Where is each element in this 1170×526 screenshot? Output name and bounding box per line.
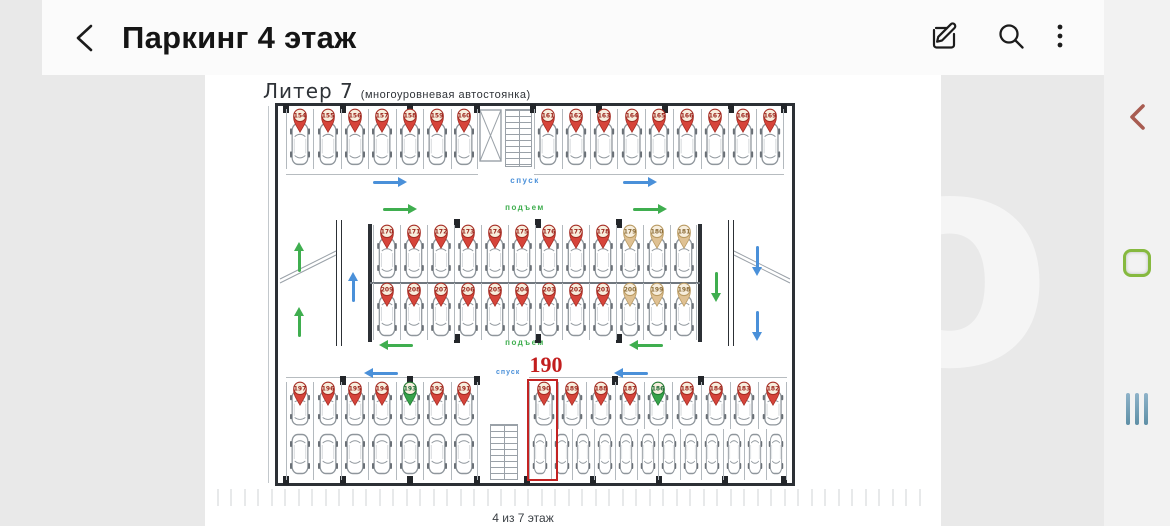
lane-arrow bbox=[373, 181, 403, 184]
parking-spot-183[interactable]: 183 bbox=[730, 382, 759, 429]
spot-pin-icon: 174 bbox=[486, 223, 505, 249]
spot-pin-icon: 180 bbox=[648, 223, 667, 249]
elevator-shaft bbox=[479, 109, 502, 162]
parking-spot-195[interactable]: 195 bbox=[341, 382, 368, 429]
spot-pin-icon: 202 bbox=[567, 281, 586, 307]
svg-text:164: 164 bbox=[625, 113, 638, 120]
svg-text:186: 186 bbox=[652, 386, 665, 393]
parking-row-mid_lower: 209 208 207 206 205 204 203 bbox=[373, 283, 697, 340]
lane-arrow bbox=[618, 372, 648, 375]
parking-spot-181[interactable]: 181 bbox=[670, 225, 697, 282]
svg-text:205: 205 bbox=[489, 287, 502, 294]
svg-text:208: 208 bbox=[408, 287, 421, 294]
ramp-left bbox=[278, 241, 338, 286]
svg-text:206: 206 bbox=[462, 287, 475, 294]
spot-pin-icon: 181 bbox=[674, 223, 693, 249]
svg-text:202: 202 bbox=[570, 287, 583, 294]
svg-text:176: 176 bbox=[543, 229, 556, 236]
ramp-arrow bbox=[756, 311, 759, 337]
edit-square-icon bbox=[928, 19, 962, 53]
dimension-line bbox=[534, 174, 784, 175]
svg-text:193: 193 bbox=[404, 386, 417, 393]
parking-spot-176[interactable]: 176 bbox=[535, 225, 562, 282]
svg-text:155: 155 bbox=[321, 113, 334, 120]
svg-text:166: 166 bbox=[681, 113, 694, 120]
spot-pin-icon: 159 bbox=[428, 107, 447, 133]
overflow-menu-button[interactable] bbox=[1037, 14, 1083, 60]
car-top-view-icon bbox=[454, 432, 475, 476]
liter-sublabel: (многоуровневая автостоянка) bbox=[361, 89, 531, 101]
svg-text:158: 158 bbox=[404, 113, 417, 120]
ramp-arrow bbox=[298, 311, 301, 337]
svg-text:203: 203 bbox=[543, 287, 556, 294]
svg-text:181: 181 bbox=[677, 229, 690, 236]
parking-spot-200[interactable]: 200 bbox=[616, 283, 643, 340]
car-top-view-icon bbox=[640, 432, 656, 476]
svg-text:168: 168 bbox=[737, 113, 750, 120]
parking-spot[interactable] bbox=[766, 429, 788, 480]
svg-text:201: 201 bbox=[597, 287, 610, 294]
svg-text:200: 200 bbox=[624, 287, 637, 294]
parking-spot[interactable] bbox=[594, 429, 616, 480]
parking-spot-188[interactable]: 188 bbox=[586, 382, 615, 429]
spot-pin-icon: 178 bbox=[594, 223, 613, 249]
parking-spot-161[interactable]: 161 bbox=[534, 109, 562, 169]
parking-spot[interactable] bbox=[658, 429, 680, 480]
spot-pin-icon: 156 bbox=[346, 107, 365, 133]
car-top-view-icon bbox=[748, 432, 764, 476]
three-bars-icon bbox=[1126, 393, 1148, 425]
liter-label: Литер 7 bbox=[263, 79, 354, 103]
svg-text:185: 185 bbox=[681, 386, 694, 393]
screen: Паркинг 4 этаж Литер 7(многоуровневая ав… bbox=[0, 0, 1170, 526]
next-floor-sheet-preview bbox=[217, 489, 929, 506]
ramp-arrow bbox=[756, 246, 759, 272]
svg-text:207: 207 bbox=[435, 287, 448, 294]
parking-row-mid_upper: 170 171 172 173 174 175 176 bbox=[373, 225, 697, 282]
spot-pin-icon: 166 bbox=[678, 107, 697, 133]
spot-pin-icon: 155 bbox=[318, 107, 337, 133]
svg-text:196: 196 bbox=[321, 386, 334, 393]
spot-pin-icon: 196 bbox=[318, 380, 337, 406]
svg-text:178: 178 bbox=[597, 229, 610, 236]
parking-spot-173[interactable]: 173 bbox=[454, 225, 481, 282]
svg-text:199: 199 bbox=[651, 287, 664, 294]
lane-arrow bbox=[368, 372, 398, 375]
selected-spot-label: 190 bbox=[511, 352, 581, 378]
svg-text:173: 173 bbox=[462, 229, 475, 236]
svg-text:154: 154 bbox=[294, 113, 307, 120]
parking-spot-177[interactable]: 177 bbox=[562, 225, 589, 282]
parking-spot[interactable] bbox=[423, 429, 450, 480]
spot-pin-icon: 167 bbox=[706, 107, 725, 133]
parking-spot-194[interactable]: 194 bbox=[368, 382, 395, 429]
parking-spot[interactable] bbox=[637, 429, 659, 480]
svg-text:182: 182 bbox=[766, 386, 779, 393]
parking-spot[interactable] bbox=[723, 429, 745, 480]
parking-spot-175[interactable]: 175 bbox=[508, 225, 535, 282]
parking-spot-164[interactable]: 164 bbox=[617, 109, 645, 169]
svg-text:162: 162 bbox=[570, 113, 583, 120]
svg-text:197: 197 bbox=[294, 386, 307, 393]
spot-pin-icon: 195 bbox=[346, 380, 365, 406]
squircle-outline-icon bbox=[1123, 249, 1151, 277]
car-top-view-icon bbox=[662, 432, 678, 476]
parking-spot-207[interactable]: 207 bbox=[427, 283, 454, 340]
parking-spot[interactable] bbox=[286, 429, 313, 480]
parking-spot-180[interactable]: 180 bbox=[643, 225, 670, 282]
nav-back-button[interactable] bbox=[1104, 92, 1170, 142]
svg-text:195: 195 bbox=[349, 386, 362, 393]
parking-spot-206[interactable]: 206 bbox=[454, 283, 481, 340]
parking-spot-167[interactable]: 167 bbox=[701, 109, 729, 169]
navigation-rail bbox=[1104, 0, 1170, 526]
dimension-line-vertical bbox=[268, 106, 269, 483]
spot-pin-icon: 179 bbox=[621, 223, 640, 249]
car-top-view-icon bbox=[726, 432, 742, 476]
svg-text:209: 209 bbox=[381, 287, 394, 294]
svg-text:171: 171 bbox=[408, 229, 421, 236]
parking-spot-159[interactable]: 159 bbox=[423, 109, 450, 169]
plan-sheet: Литер 7(многоуровневая автостоянка) bbox=[205, 75, 941, 526]
spot-pin-icon: 177 bbox=[567, 223, 586, 249]
parking-spot-162[interactable]: 162 bbox=[562, 109, 590, 169]
spot-pin-icon: 163 bbox=[594, 107, 613, 133]
ramp-arrow bbox=[352, 276, 355, 302]
svg-text:187: 187 bbox=[624, 386, 637, 393]
parking-spot-157[interactable]: 157 bbox=[368, 109, 395, 169]
parking-spot[interactable] bbox=[313, 429, 340, 480]
svg-text:167: 167 bbox=[709, 113, 722, 120]
svg-text:198: 198 bbox=[677, 287, 690, 294]
svg-text:175: 175 bbox=[516, 229, 529, 236]
spot-pin-icon: 204 bbox=[513, 281, 532, 307]
parking-spot-209[interactable]: 209 bbox=[373, 283, 400, 340]
car-top-view-icon bbox=[619, 432, 635, 476]
nav-recents-button[interactable] bbox=[1104, 384, 1170, 434]
parking-spot[interactable] bbox=[680, 429, 702, 480]
parking-spot-203[interactable]: 203 bbox=[535, 283, 562, 340]
spot-pin-icon: 191 bbox=[455, 380, 474, 406]
parking-spot-174[interactable]: 174 bbox=[481, 225, 508, 282]
parking-spot-198[interactable]: 198 bbox=[670, 283, 697, 340]
spot-pin-icon: 183 bbox=[735, 380, 754, 406]
parking-spot-202[interactable]: 202 bbox=[562, 283, 589, 340]
parking-spot[interactable] bbox=[572, 429, 594, 480]
parking-row-bottom_left_inner bbox=[286, 429, 478, 480]
parking-spot[interactable] bbox=[396, 429, 423, 480]
page-title: Паркинг 4 этаж bbox=[122, 20, 356, 56]
car-top-view-icon bbox=[344, 432, 365, 476]
svg-text:163: 163 bbox=[598, 113, 611, 120]
parking-spot-192[interactable]: 192 bbox=[423, 382, 450, 429]
spot-pin-icon: 185 bbox=[678, 380, 697, 406]
nav-home-button[interactable] bbox=[1104, 238, 1170, 288]
spot-pin-icon: 171 bbox=[405, 223, 424, 249]
dimension-line bbox=[286, 377, 478, 378]
parking-spot-178[interactable]: 178 bbox=[589, 225, 616, 282]
staircase-top bbox=[505, 109, 532, 167]
parking-spot-204[interactable]: 204 bbox=[508, 283, 535, 340]
parking-spot-154[interactable]: 154 bbox=[286, 109, 313, 169]
spot-pin-icon: 175 bbox=[513, 223, 532, 249]
car-top-view-icon bbox=[372, 432, 393, 476]
spot-pin-icon: 161 bbox=[539, 107, 558, 133]
spot-pin-icon: 198 bbox=[674, 281, 693, 307]
spot-pin-icon: 172 bbox=[432, 223, 451, 249]
parking-spot-191[interactable]: 191 bbox=[451, 382, 478, 429]
parking-spot[interactable] bbox=[744, 429, 766, 480]
parking-spot-185[interactable]: 185 bbox=[672, 382, 701, 429]
car-top-view-icon bbox=[289, 432, 310, 476]
spot-pin-icon: 176 bbox=[540, 223, 559, 249]
edit-button[interactable] bbox=[922, 14, 968, 60]
parking-spot-172[interactable]: 172 bbox=[427, 225, 454, 282]
dimension-line bbox=[286, 174, 478, 175]
spot-pin-icon: 209 bbox=[378, 281, 397, 307]
svg-text:189: 189 bbox=[566, 386, 579, 393]
spot-pin-icon: 197 bbox=[291, 380, 310, 406]
parking-spot-168[interactable]: 168 bbox=[728, 109, 756, 169]
spot-pin-icon: 184 bbox=[706, 380, 725, 406]
parking-row-bottom_right: 190 189 188 187 186 185 184 bbox=[529, 382, 787, 429]
car-top-view-icon bbox=[317, 432, 338, 476]
car-top-view-icon bbox=[399, 432, 420, 476]
parking-spot-201[interactable]: 201 bbox=[589, 283, 616, 340]
spot-pin-icon: 169 bbox=[761, 107, 780, 133]
spot-pin-icon: 199 bbox=[648, 281, 667, 307]
parking-spot[interactable] bbox=[451, 429, 478, 480]
svg-text:174: 174 bbox=[489, 229, 502, 236]
parking-spot-169[interactable]: 169 bbox=[756, 109, 784, 169]
ramp-right bbox=[732, 241, 792, 286]
chevron-left-icon bbox=[1127, 102, 1147, 132]
magnifier-icon bbox=[994, 19, 1028, 53]
spot-pin-icon: 168 bbox=[733, 107, 752, 133]
lane-label-descent-top: спуск bbox=[490, 176, 560, 185]
spot-pin-icon: 158 bbox=[400, 107, 419, 133]
parking-spot-197[interactable]: 197 bbox=[286, 382, 313, 429]
spot-pin-icon: 205 bbox=[486, 281, 505, 307]
spot-pin-icon: 162 bbox=[567, 107, 586, 133]
parking-spot-182[interactable]: 182 bbox=[758, 382, 787, 429]
parking-spot-205[interactable]: 205 bbox=[481, 283, 508, 340]
spot-pin-icon: 165 bbox=[650, 107, 669, 133]
svg-text:165: 165 bbox=[653, 113, 666, 120]
car-top-view-icon bbox=[769, 432, 785, 476]
spot-pin-icon: 192 bbox=[428, 380, 447, 406]
ramp-arrow bbox=[298, 246, 301, 272]
car-top-view-icon bbox=[597, 432, 613, 476]
parking-spot-166[interactable]: 166 bbox=[673, 109, 701, 169]
spot-pin-icon: 193 bbox=[400, 380, 419, 406]
spot-pin-icon: 173 bbox=[459, 223, 478, 249]
svg-text:188: 188 bbox=[595, 386, 608, 393]
chevron-left-icon bbox=[72, 23, 98, 53]
lane-arrow bbox=[623, 181, 653, 184]
svg-text:172: 172 bbox=[435, 229, 448, 236]
car-top-view-icon bbox=[427, 432, 448, 476]
lane-label-ascent-top: подъем bbox=[490, 203, 560, 212]
svg-text:157: 157 bbox=[376, 113, 389, 120]
lane-arrow bbox=[633, 208, 663, 211]
lane-arrow bbox=[383, 344, 413, 347]
selected-spot-box bbox=[527, 379, 558, 481]
parking-spot-155[interactable]: 155 bbox=[313, 109, 340, 169]
parking-spot-163[interactable]: 163 bbox=[590, 109, 618, 169]
parking-row-bottom_right_inner bbox=[529, 429, 787, 480]
svg-text:192: 192 bbox=[431, 386, 444, 393]
spot-pin-icon: 194 bbox=[373, 380, 392, 406]
floor-plan-canvas[interactable]: спуск подъем подъем спуск bbox=[275, 103, 795, 486]
back-button[interactable] bbox=[72, 23, 98, 53]
ramp-arrow bbox=[715, 272, 718, 298]
svg-text:156: 156 bbox=[349, 113, 362, 120]
spot-pin-icon: 200 bbox=[621, 281, 640, 307]
sheet-title: Литер 7(многоуровневая автостоянка) bbox=[263, 79, 531, 103]
parking-spot[interactable] bbox=[368, 429, 395, 480]
floor-caption: 4 из 7 этаж bbox=[443, 511, 603, 525]
svg-text:194: 194 bbox=[376, 386, 389, 393]
svg-text:169: 169 bbox=[764, 113, 777, 120]
spot-pin-icon: 201 bbox=[594, 281, 613, 307]
app-header: Паркинг 4 этаж bbox=[42, 0, 1104, 75]
parking-spot-189[interactable]: 189 bbox=[558, 382, 587, 429]
parking-spot-170[interactable]: 170 bbox=[373, 225, 400, 282]
parking-spot[interactable] bbox=[701, 429, 723, 480]
svg-text:180: 180 bbox=[651, 229, 664, 236]
parking-spot-156[interactable]: 156 bbox=[341, 109, 368, 169]
parking-row-top_right: 161 162 163 164 165 166 167 bbox=[534, 109, 784, 169]
spot-pin-icon: 203 bbox=[540, 281, 559, 307]
spot-pin-icon: 186 bbox=[649, 380, 668, 406]
parking-spot-160[interactable]: 160 bbox=[451, 109, 478, 169]
svg-text:184: 184 bbox=[710, 386, 723, 393]
staircase-bottom bbox=[490, 424, 518, 480]
parking-spot-179[interactable]: 179 bbox=[616, 225, 643, 282]
lane-arrow bbox=[383, 208, 413, 211]
spot-pin-icon: 189 bbox=[563, 380, 582, 406]
kebab-vertical-icon bbox=[1043, 19, 1077, 53]
svg-text:161: 161 bbox=[542, 113, 555, 120]
parking-spot-184[interactable]: 184 bbox=[701, 382, 730, 429]
parking-spot-158[interactable]: 158 bbox=[396, 109, 423, 169]
spot-pin-icon: 187 bbox=[620, 380, 639, 406]
parking-spot-171[interactable]: 171 bbox=[400, 225, 427, 282]
spot-pin-icon: 160 bbox=[455, 107, 474, 133]
parking-spot[interactable] bbox=[341, 429, 368, 480]
parking-row-bottom_left: 197 196 195 194 193 192 191 bbox=[286, 382, 478, 429]
spot-pin-icon: 182 bbox=[763, 380, 782, 406]
plan-panel: Литер 7(многоуровневая автостоянка) bbox=[205, 75, 941, 526]
parking-spot-193[interactable]: 193 bbox=[396, 382, 423, 429]
svg-text:191: 191 bbox=[458, 386, 471, 393]
svg-text:159: 159 bbox=[431, 113, 444, 120]
spot-pin-icon: 164 bbox=[622, 107, 641, 133]
lane-arrow bbox=[633, 344, 663, 347]
spot-pin-icon: 207 bbox=[432, 281, 451, 307]
spot-pin-icon: 157 bbox=[373, 107, 392, 133]
svg-text:160: 160 bbox=[458, 113, 471, 120]
car-top-view-icon bbox=[683, 432, 699, 476]
svg-text:179: 179 bbox=[624, 229, 637, 236]
car-top-view-icon bbox=[705, 432, 721, 476]
parking-spot-199[interactable]: 199 bbox=[643, 283, 670, 340]
spot-pin-icon: 154 bbox=[291, 107, 310, 133]
parking-row-top_left: 154 155 156 157 158 159 160 bbox=[286, 109, 478, 169]
spot-pin-icon: 208 bbox=[405, 281, 424, 307]
spot-pin-icon: 188 bbox=[592, 380, 611, 406]
spot-pin-icon: 170 bbox=[378, 223, 397, 249]
svg-text:170: 170 bbox=[381, 229, 394, 236]
svg-text:183: 183 bbox=[738, 386, 751, 393]
parking-spot-165[interactable]: 165 bbox=[645, 109, 673, 169]
car-top-view-icon bbox=[576, 432, 592, 476]
parking-spot-208[interactable]: 208 bbox=[400, 283, 427, 340]
svg-text:177: 177 bbox=[570, 229, 583, 236]
parking-spot-186[interactable]: 186 bbox=[644, 382, 673, 429]
svg-text:204: 204 bbox=[516, 287, 529, 294]
parking-spot[interactable] bbox=[615, 429, 637, 480]
parking-spot-187[interactable]: 187 bbox=[615, 382, 644, 429]
search-button[interactable] bbox=[988, 14, 1034, 60]
spot-pin-icon: 206 bbox=[459, 281, 478, 307]
parking-spot-196[interactable]: 196 bbox=[313, 382, 340, 429]
